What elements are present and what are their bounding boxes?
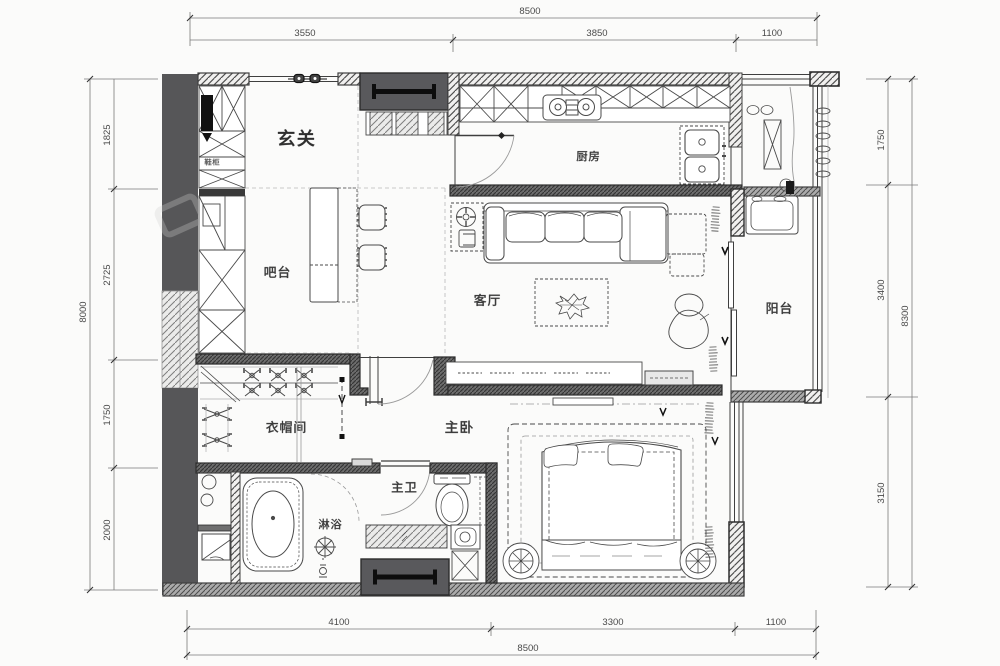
svg-text:3850: 3850	[586, 28, 607, 39]
svg-text:8500: 8500	[519, 6, 540, 17]
svg-text:8000: 8000	[78, 301, 89, 322]
svg-text:3150: 3150	[876, 482, 887, 503]
svg-text:8300: 8300	[900, 305, 911, 326]
svg-text:3550: 3550	[294, 28, 315, 39]
svg-text:1825: 1825	[102, 124, 113, 145]
svg-text:8500: 8500	[517, 643, 538, 654]
svg-text:1100: 1100	[766, 617, 786, 628]
svg-text:1750: 1750	[876, 129, 887, 150]
svg-text:3300: 3300	[602, 617, 623, 628]
svg-text:1100: 1100	[762, 28, 782, 39]
svg-text:4100: 4100	[328, 617, 349, 628]
svg-text:1750: 1750	[102, 404, 113, 425]
svg-text:2725: 2725	[102, 264, 113, 285]
svg-text:2000: 2000	[102, 519, 113, 540]
svg-text:3400: 3400	[876, 279, 887, 300]
